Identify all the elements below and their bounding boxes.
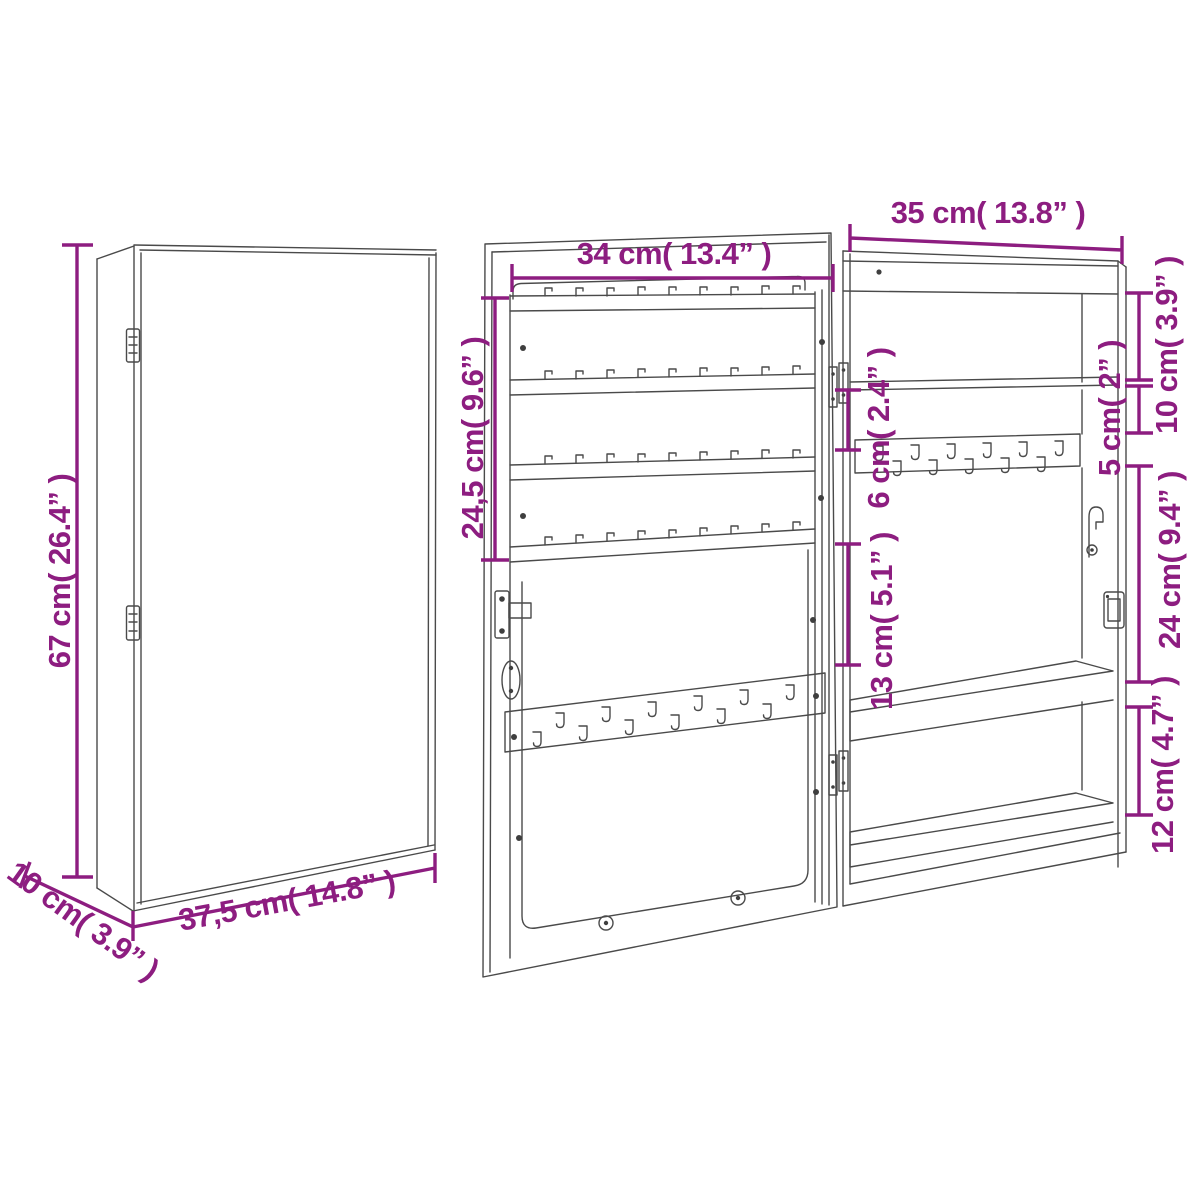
dim-door-mid-label: 13 cm( 5.1” ) xyxy=(864,532,900,710)
door-hinge-icon xyxy=(829,363,848,795)
dim-interior-bottom-label: 12 cm( 4.7” ) xyxy=(1145,676,1181,854)
dim-door-rails-label: 24,5 cm( 9.6” ) xyxy=(455,337,491,540)
latch-hook-icon xyxy=(1087,507,1103,557)
door-interior-view xyxy=(483,233,848,977)
technical-drawing xyxy=(0,0,1200,1200)
dim-interior-top-label: 10 cm( 3.9” ) xyxy=(1149,256,1185,434)
door-inner-panel xyxy=(522,550,808,928)
lock-icon xyxy=(1104,592,1124,628)
closed-cabinet-view xyxy=(97,245,436,911)
dim-interior-middle-label: 24 cm( 9.4” ) xyxy=(1152,471,1188,649)
door-hook-rail xyxy=(505,673,825,752)
cabinet-hinge-icon xyxy=(127,329,140,640)
dim-interior-shelfgap-label: 5 cm( 2” ) xyxy=(1092,340,1128,476)
dimension-lines xyxy=(20,224,1153,941)
dim-closed-height-label: 67 cm( 26.4” ) xyxy=(42,474,78,669)
dim-door-hookgap-label: 6 cm( 2.4” ) xyxy=(861,347,897,508)
door-latch-icon xyxy=(495,591,531,699)
diagram-canvas: 67 cm( 26.4” ) 10 cm( 3.9” ) 37,5 cm( 14… xyxy=(0,0,1200,1200)
interior-tray-lower xyxy=(850,793,1113,867)
mounting-hole xyxy=(876,269,881,274)
earring-rails xyxy=(510,286,815,562)
dim-door-width-label: 34 cm( 13.4” ) xyxy=(577,236,772,272)
dim-interior-width-label: 35 cm( 13.8” ) xyxy=(891,195,1086,231)
door-screws xyxy=(516,339,825,930)
